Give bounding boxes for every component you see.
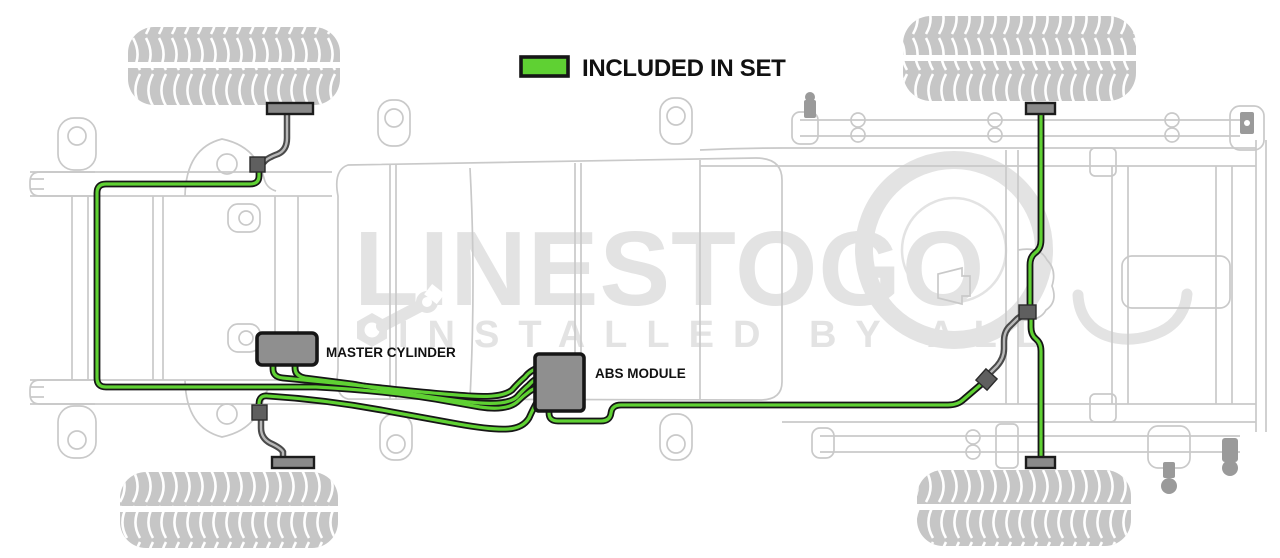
legend: INCLUDED IN SET (521, 55, 786, 82)
connector-front-top (250, 157, 265, 172)
brake-line-diagram-page: LINESTOGO INSTALLED BY ALL (0, 0, 1280, 558)
watermark: LINESTOGO INSTALLED BY ALL (354, 160, 1187, 356)
brake-line-rear-feed (549, 381, 985, 421)
hub-plate-front-top (267, 103, 313, 114)
front-frame-rails (30, 118, 334, 458)
legend-swatch (521, 57, 568, 76)
hub-plate-rear-bottom (1026, 457, 1055, 468)
master-cylinder-label: MASTER CYLINDER (326, 345, 456, 360)
abs-module-label: ABS MODULE (595, 366, 686, 381)
legend-label: INCLUDED IN SET (582, 55, 786, 82)
tire-front-top (128, 27, 340, 105)
hub-plate-front-bottom (272, 457, 314, 468)
master-cylinder-box (257, 333, 317, 365)
tire-front-bottom (120, 472, 338, 548)
tire-rear-top (903, 16, 1136, 101)
connector-axle-junction (1019, 305, 1036, 319)
hub-plate-rear-top (1026, 103, 1055, 114)
tire-rear-bottom (917, 470, 1131, 546)
connector-front-bottom (252, 405, 267, 420)
truck-chassis-brake-line-diagram: LINESTOGO INSTALLED BY ALL (0, 0, 1280, 558)
abs-module-box (535, 354, 584, 411)
